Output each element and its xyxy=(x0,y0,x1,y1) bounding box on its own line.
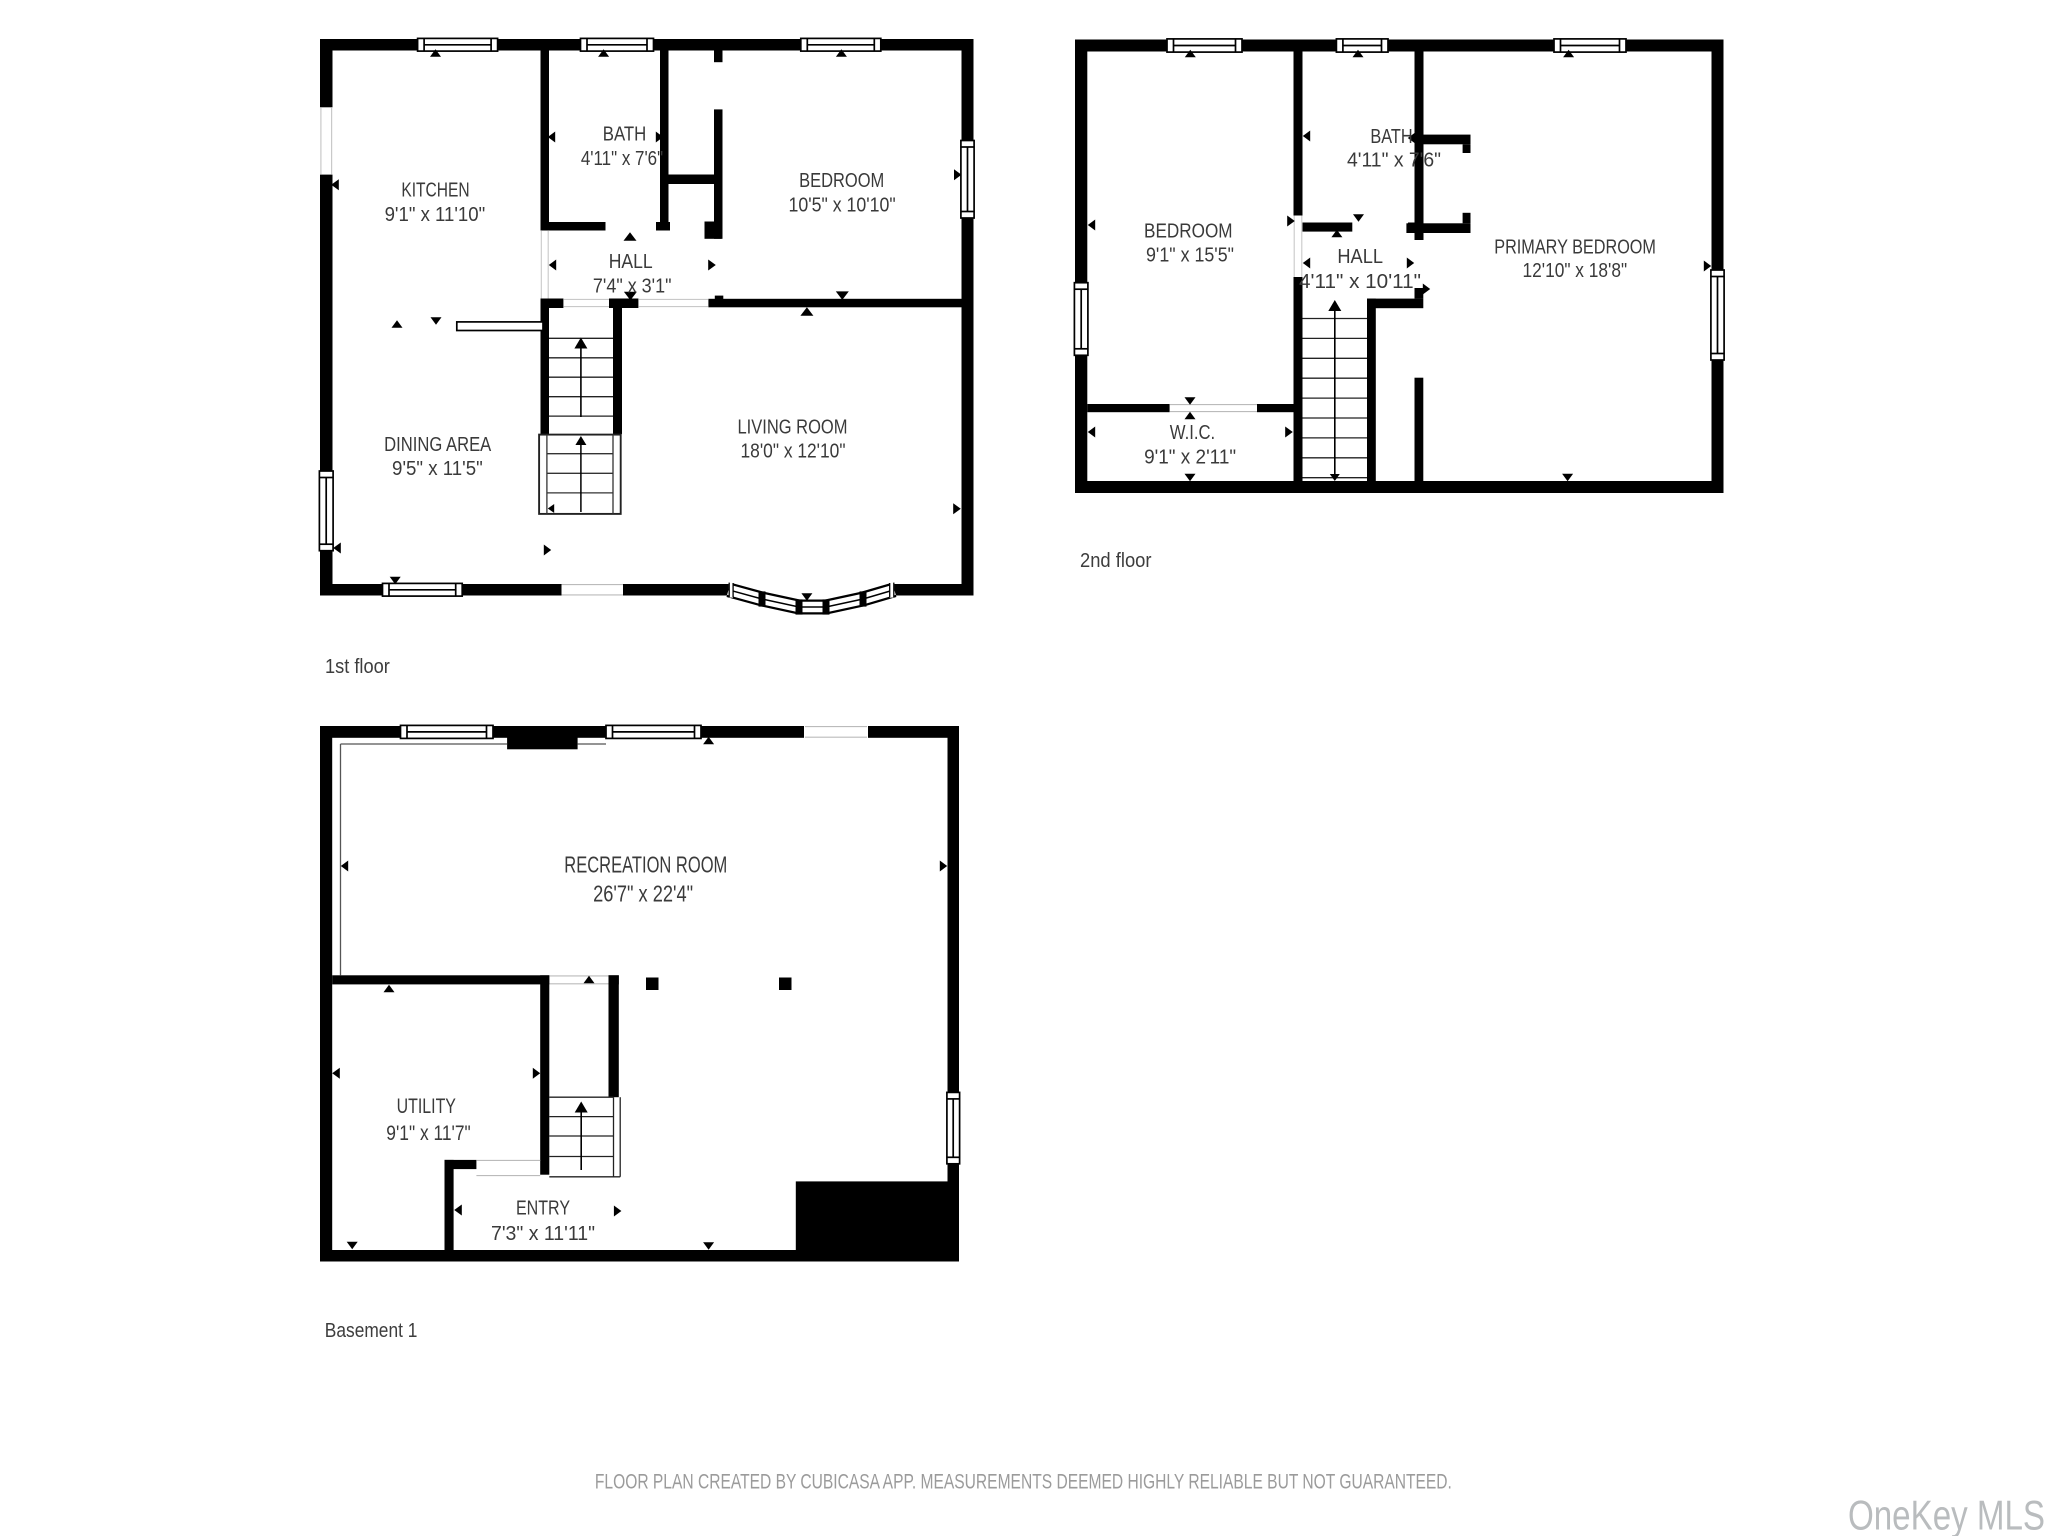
svg-text:ENTRY: ENTRY xyxy=(516,1198,570,1220)
svg-text:UTILITY: UTILITY xyxy=(397,1094,456,1118)
svg-text:DINING AREA: DINING AREA xyxy=(384,434,492,456)
svg-text:9'1" x 11'10": 9'1" x 11'10" xyxy=(385,204,486,226)
svg-text:BEDROOM: BEDROOM xyxy=(799,170,884,192)
svg-text:BATH: BATH xyxy=(1370,126,1412,148)
svg-text:BEDROOM: BEDROOM xyxy=(1144,220,1233,242)
svg-text:OneKey MLS: OneKey MLS xyxy=(1848,1491,2045,1536)
svg-text:HALL: HALL xyxy=(1337,246,1383,268)
svg-text:W.I.C.: W.I.C. xyxy=(1170,422,1215,444)
svg-text:Basement 1: Basement 1 xyxy=(325,1319,418,1342)
svg-text:FLOOR PLAN CREATED BY CUBICASA: FLOOR PLAN CREATED BY CUBICASA APP. MEAS… xyxy=(595,1471,1452,1494)
svg-text:10'5" x 10'10": 10'5" x 10'10" xyxy=(789,194,896,216)
svg-text:18'0" x 12'10": 18'0" x 12'10" xyxy=(741,441,846,463)
svg-text:4'11" x 10'11": 4'11" x 10'11" xyxy=(1299,271,1421,293)
svg-text:HALL: HALL xyxy=(609,251,653,273)
svg-text:PRIMARY BEDROOM: PRIMARY BEDROOM xyxy=(1494,236,1656,258)
svg-text:2nd floor: 2nd floor xyxy=(1080,549,1152,572)
svg-text:4'11" x 7'6": 4'11" x 7'6" xyxy=(1347,150,1441,172)
svg-text:9'1" x 15'5": 9'1" x 15'5" xyxy=(1146,245,1234,267)
svg-text:9'5" x 11'5": 9'5" x 11'5" xyxy=(392,458,483,480)
svg-text:BATH: BATH xyxy=(603,124,647,146)
svg-text:RECREATION ROOM: RECREATION ROOM xyxy=(564,851,727,877)
svg-text:12'10" x 18'8": 12'10" x 18'8" xyxy=(1523,260,1628,282)
svg-text:4'11" x 7'6": 4'11" x 7'6" xyxy=(581,148,663,170)
svg-text:7'4" x 3'1": 7'4" x 3'1" xyxy=(593,275,672,297)
svg-text:9'1" x 2'11": 9'1" x 2'11" xyxy=(1144,447,1236,469)
svg-text:7'3" x 11'11": 7'3" x 11'11" xyxy=(491,1223,595,1245)
svg-text:9'1" x 11'7": 9'1" x 11'7" xyxy=(386,1121,470,1145)
svg-text:KITCHEN: KITCHEN xyxy=(401,180,469,202)
svg-text:1st floor: 1st floor xyxy=(325,655,390,678)
svg-text:26'7" x 22'4": 26'7" x 22'4" xyxy=(593,881,693,907)
svg-text:LIVING ROOM: LIVING ROOM xyxy=(738,416,848,438)
